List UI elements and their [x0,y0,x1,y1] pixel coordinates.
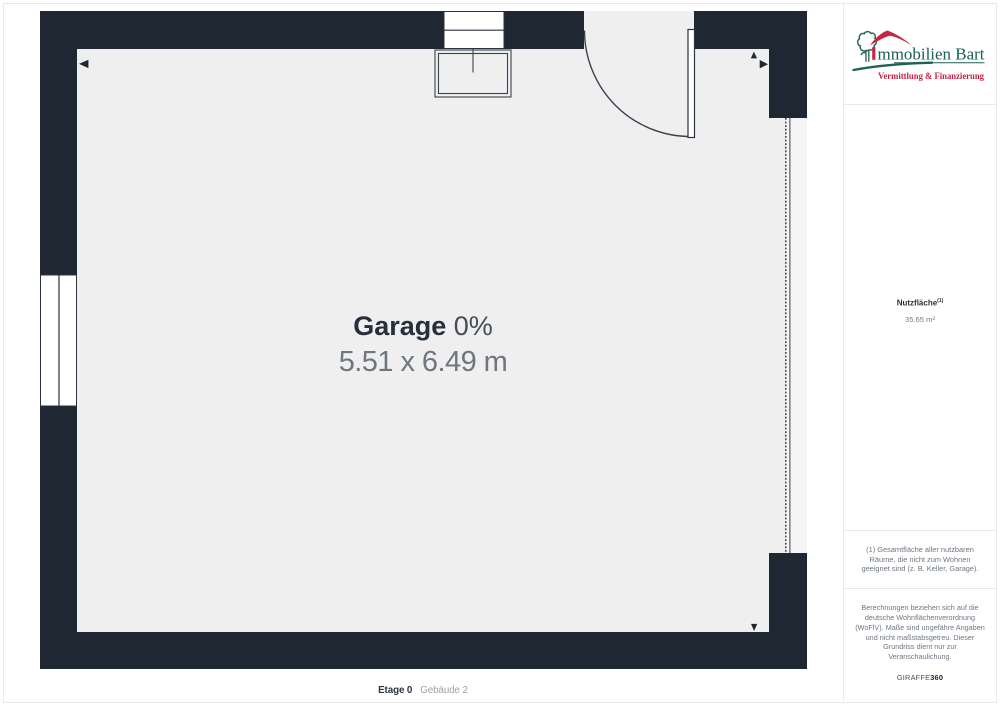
svg-text:mmobilien Bart: mmobilien Bart [878,45,985,64]
svg-text:Vermittlung & Finanzierung: Vermittlung & Finanzierung [878,72,984,82]
